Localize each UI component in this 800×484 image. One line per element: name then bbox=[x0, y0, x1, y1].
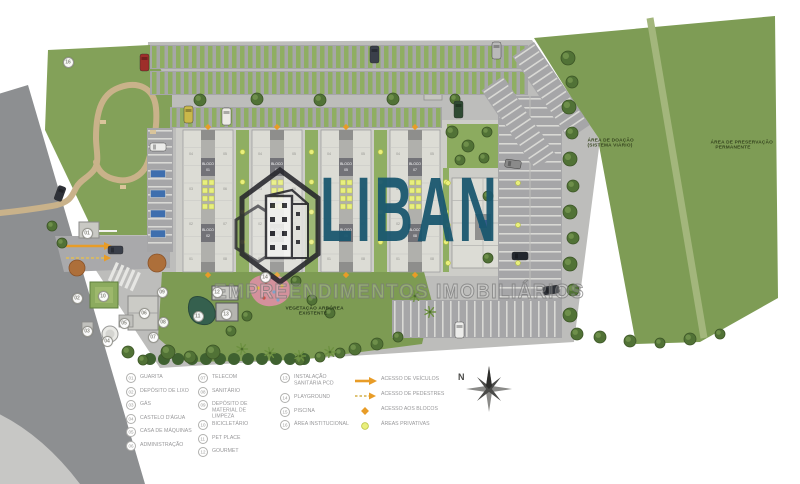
unit-label: 04 bbox=[258, 152, 262, 156]
car-icon bbox=[222, 108, 231, 125]
private-area-lamp-dot bbox=[240, 150, 245, 155]
legend-item-number: 09 bbox=[201, 403, 206, 408]
area-label-preservacao: ÁREA DE PRESERVAÇÃO PERMANENTE bbox=[688, 140, 778, 151]
map-marker-01: 01 bbox=[82, 228, 93, 239]
private-area-lamp-dot bbox=[446, 261, 451, 266]
parking-band bbox=[392, 300, 562, 338]
car-icon bbox=[370, 46, 379, 63]
legend-access-label: ACESSO DE PEDESTRES bbox=[381, 391, 454, 397]
bloco-label-band bbox=[201, 158, 215, 176]
tree-highlight bbox=[139, 356, 144, 361]
lightwell bbox=[209, 204, 214, 209]
map-marker-09: 09 bbox=[157, 287, 168, 298]
bloco-label: 01 bbox=[206, 168, 210, 172]
track-rest-spot bbox=[100, 120, 106, 124]
legend-access-label: ÁREAS PRIVATIVAS bbox=[381, 421, 454, 427]
lightwell bbox=[203, 204, 208, 209]
legend-item-label: TELECOM bbox=[212, 374, 268, 380]
map-marker-number: 02 bbox=[74, 295, 80, 301]
legend-item-number: 10 bbox=[201, 423, 206, 428]
legend-item-number-circle: 09 bbox=[198, 400, 208, 410]
tree-highlight bbox=[163, 347, 169, 353]
legend-item-05: 05CASA DE MÁQUINAS bbox=[126, 427, 198, 441]
tree-highlight bbox=[569, 234, 574, 239]
tree-highlight bbox=[565, 207, 571, 213]
map-marker-number: 16 bbox=[65, 59, 71, 65]
bloco-label-band bbox=[201, 224, 215, 242]
legend: 01GUARITA02DEPÓSITO DE LIXO03GÁS04CASTEL… bbox=[126, 373, 596, 478]
legend-item-06: 06ADMINISTRAÇÃO bbox=[126, 441, 198, 455]
tree-highlight bbox=[716, 330, 721, 335]
legend-item-label: GOURMET bbox=[212, 448, 268, 454]
legend-item-number-circle: 15 bbox=[280, 407, 290, 417]
map-marker-08: 08 bbox=[158, 317, 169, 328]
tree-highlight bbox=[336, 349, 341, 354]
map-marker-number: 10 bbox=[100, 293, 106, 299]
tree-highlight bbox=[564, 102, 570, 108]
private-area-lamp-dot bbox=[309, 150, 314, 155]
unit-label: 05 bbox=[223, 152, 227, 156]
legend-item-number-circle: 06 bbox=[126, 441, 136, 451]
legend-item-number-circle: 11 bbox=[198, 434, 208, 444]
bloco-label: BLOCO bbox=[271, 162, 283, 166]
legend-item-number-circle: 08 bbox=[198, 387, 208, 397]
legend-item-label: CASA DE MÁQUINAS bbox=[140, 428, 196, 434]
map-marker-number: 06 bbox=[141, 310, 147, 316]
unit-label: 05 bbox=[361, 152, 365, 156]
legend-access-arrow-solid: ACESSO DE VEÍCULOS bbox=[354, 374, 464, 389]
private-area-lamp-dot bbox=[378, 150, 383, 155]
map-marker-number: 12 bbox=[214, 289, 220, 295]
map-marker-11: 11 bbox=[193, 311, 204, 322]
map-marker-number: 09 bbox=[159, 289, 165, 295]
residential-block: BLOCO01BLOCO020403020105060708 bbox=[183, 124, 233, 278]
tree-highlight bbox=[451, 95, 456, 100]
legend-item-label: PLAYGROUND bbox=[294, 394, 350, 400]
tree-highlight bbox=[565, 154, 571, 160]
legend-item-number: 15 bbox=[283, 409, 288, 414]
unit-label: 08 bbox=[223, 257, 227, 261]
car-icon bbox=[150, 143, 166, 151]
legend-item-number-circle: 10 bbox=[198, 420, 208, 430]
circle-icon bbox=[354, 421, 378, 431]
legend-item-number-circle: 13 bbox=[280, 373, 290, 383]
map-marker-number: 01 bbox=[84, 230, 90, 236]
site-plan-canvas: BLOCO01BLOCO020403020105060708BLOCO03BLO… bbox=[0, 0, 800, 484]
tree-highlight bbox=[389, 95, 394, 100]
car-icon bbox=[512, 252, 528, 260]
tree-highlight bbox=[48, 222, 53, 227]
legend-item-label: DEPÓSITO DE MATERIAL DE LIMPEZA bbox=[212, 401, 268, 420]
legend-access-diamond: ACESSO AOS BLOCOS bbox=[354, 404, 464, 419]
map-marker-12: 12 bbox=[212, 287, 223, 298]
bloco-label: 02 bbox=[206, 234, 210, 238]
tree-highlight bbox=[686, 335, 691, 340]
lightwell bbox=[209, 188, 214, 193]
legend-item-04: 04CASTELO D'ÁGUA bbox=[126, 414, 198, 428]
tree-highlight bbox=[58, 239, 63, 244]
tree-highlight bbox=[351, 345, 356, 350]
compass: N bbox=[450, 364, 512, 422]
legend-item-number: 02 bbox=[129, 389, 134, 394]
legend-item-number-circle: 01 bbox=[126, 373, 136, 383]
legend-item-label: CASTELO D'ÁGUA bbox=[140, 415, 196, 421]
private-area-lamp-dot bbox=[516, 181, 521, 186]
tree-highlight bbox=[568, 129, 573, 134]
map-marker-03: 03 bbox=[82, 326, 93, 337]
arrow-solid-icon bbox=[354, 376, 378, 386]
legend-item-number: 03 bbox=[129, 403, 134, 408]
unit-label: 01 bbox=[189, 257, 193, 261]
map-marker-16: 16 bbox=[63, 57, 74, 68]
accessible-parking-stall bbox=[151, 230, 166, 238]
accessible-parking-stall bbox=[151, 190, 166, 198]
legend-item-number-circle: 14 bbox=[280, 393, 290, 403]
map-marker-14: 14 bbox=[260, 272, 271, 283]
area-label-doacao: ÁREA DE DOAÇÃO (SISTEMA VIÁRIO) bbox=[565, 138, 655, 149]
tree-highlight bbox=[208, 347, 214, 353]
legend-item-08: 08SANITÁRIO bbox=[198, 387, 270, 401]
legend-item-07: 07TELECOM bbox=[198, 373, 270, 387]
legend-access-circle: ÁREAS PRIVATIVAS bbox=[354, 419, 464, 434]
legend-item-10: 10BICICLETÁRIO bbox=[198, 420, 270, 434]
private-area-lamp-dot bbox=[516, 261, 521, 266]
map-marker-13: 13 bbox=[221, 309, 232, 320]
tree-highlight bbox=[464, 142, 469, 147]
bloco-label: BLOCO bbox=[202, 228, 214, 232]
unit-label: 03 bbox=[189, 187, 193, 191]
legend-item-number-circle: 12 bbox=[198, 447, 208, 457]
parking-band bbox=[150, 71, 528, 95]
tree-highlight bbox=[448, 128, 453, 133]
private-area-lamp-dot bbox=[516, 223, 521, 228]
legend-access-label: ACESSO DE VEÍCULOS bbox=[381, 376, 454, 382]
tree-highlight bbox=[196, 96, 201, 101]
lightwell bbox=[203, 180, 208, 185]
unit-label: 06 bbox=[223, 187, 227, 191]
legend-item-number-circle: 16 bbox=[280, 420, 290, 430]
bloco-label: BLOCO bbox=[202, 162, 214, 166]
legend-access-label: ACESSO AOS BLOCOS bbox=[381, 406, 454, 412]
legend-item-number: 04 bbox=[129, 416, 134, 421]
map-marker-number: 14 bbox=[262, 274, 268, 280]
legend-item-01: 01GUARITA bbox=[126, 373, 198, 387]
legend-item-label: GÁS bbox=[140, 401, 196, 407]
tree-highlight bbox=[186, 353, 191, 358]
car-icon bbox=[108, 246, 123, 254]
compass-n-label: N bbox=[458, 372, 465, 382]
tree-highlight bbox=[596, 333, 601, 338]
map-marker-number: 11 bbox=[195, 313, 200, 319]
map-marker-number: 03 bbox=[84, 328, 90, 334]
legend-item-14: 14PLAYGROUND bbox=[280, 393, 352, 407]
car-icon bbox=[184, 106, 193, 123]
area-label-vegetacao: VEGETAÇÃO ARBÓREA EXISTENTE bbox=[258, 306, 368, 317]
area-label-doacao-line2: (SISTEMA VIÁRIO) bbox=[588, 143, 633, 148]
unit-label: 05 bbox=[292, 152, 296, 156]
map-marker-10: 10 bbox=[98, 291, 109, 302]
map-marker-05: 05 bbox=[119, 318, 130, 329]
tree-highlight bbox=[565, 310, 571, 316]
liban-logo-icon bbox=[240, 168, 320, 284]
legend-item-11: 11PET PLACE bbox=[198, 434, 270, 448]
legend-item-number: 14 bbox=[283, 396, 288, 401]
legend-item-16: 16ÁREA INSTITUCIONAL bbox=[280, 420, 352, 440]
car-icon bbox=[140, 54, 149, 71]
legend-item-label: PISCINA bbox=[294, 408, 350, 414]
legend-item-number: 06 bbox=[129, 443, 134, 448]
map-marker-07: 07 bbox=[148, 332, 159, 343]
legend-item-number-circle: 07 bbox=[198, 373, 208, 383]
hedge bbox=[228, 353, 240, 365]
map-marker-number: 05 bbox=[121, 320, 127, 326]
map-marker-number: 08 bbox=[160, 319, 166, 325]
tree-highlight bbox=[563, 53, 569, 59]
hedge bbox=[284, 353, 296, 365]
car-icon bbox=[454, 101, 463, 118]
legend-item-number: 08 bbox=[201, 389, 206, 394]
legend-item-12: 12GOURMET bbox=[198, 447, 270, 461]
accessible-parking-stall bbox=[151, 210, 166, 218]
legend-item-02: 02DEPÓSITO DE LIXO bbox=[126, 387, 198, 401]
legend-item-13: 13INSTALAÇÃO SANITÁRIA PCD bbox=[280, 373, 352, 393]
parking-band bbox=[170, 107, 442, 128]
tree-highlight bbox=[626, 337, 631, 342]
legend-item-label: SANITÁRIO bbox=[212, 388, 268, 394]
legend-item-number: 16 bbox=[283, 423, 288, 428]
legend-item-number-circle: 03 bbox=[126, 400, 136, 410]
unit-label: 04 bbox=[327, 152, 331, 156]
legend-access-arrow-dashed: ACESSO DE PEDESTRES bbox=[354, 389, 464, 404]
legend-item-03: 03GÁS bbox=[126, 400, 198, 414]
tree-highlight bbox=[253, 95, 258, 100]
legend-item-number: 11 bbox=[201, 436, 206, 441]
map-marker-number: 04 bbox=[104, 338, 110, 344]
tree-highlight bbox=[373, 340, 378, 345]
hedge bbox=[242, 353, 254, 365]
watermark-brand: LIBAN bbox=[320, 164, 500, 256]
accessible-parking-stall bbox=[151, 170, 166, 178]
legend-item-label: GUARITA bbox=[140, 374, 196, 380]
tree-highlight bbox=[568, 78, 573, 83]
area-label-preservacao-line2: PERMANENTE bbox=[711, 145, 756, 150]
legend-item-label: DEPÓSITO DE LIXO bbox=[140, 388, 196, 394]
map-marker-06: 06 bbox=[139, 308, 150, 319]
legend-column-2: 07TELECOM08SANITÁRIO09DEPÓSITO DE MATERI… bbox=[198, 373, 270, 461]
watermark-subtitle: EMPREENDIMENTOS IMOBILIÁRIOS bbox=[214, 281, 585, 304]
compass-rose-icon bbox=[466, 366, 512, 412]
tree-highlight bbox=[573, 330, 578, 335]
track-rest-spot bbox=[150, 130, 156, 134]
arrow-dashed-icon bbox=[354, 391, 378, 401]
tree-highlight bbox=[569, 182, 574, 187]
legend-item-label: ÁREA INSTITUCIONAL bbox=[294, 421, 350, 427]
map-marker-02: 02 bbox=[72, 293, 83, 304]
orange-tree-icon bbox=[69, 260, 85, 276]
car-icon bbox=[492, 42, 501, 59]
legend-item-label: BICICLETÁRIO bbox=[212, 421, 268, 427]
legend-item-15: 15PISCINA bbox=[280, 407, 352, 421]
legend-column-1: 01GUARITA02DEPÓSITO DE LIXO03GÁS04CASTEL… bbox=[126, 373, 198, 454]
unit-label: 04 bbox=[396, 152, 400, 156]
tree-highlight bbox=[565, 259, 571, 265]
legend-item-label: INSTALAÇÃO SANITÁRIA PCD bbox=[294, 374, 350, 386]
legend-item-number: 07 bbox=[201, 376, 206, 381]
map-marker-number: 07 bbox=[150, 334, 156, 340]
unit-label: 07 bbox=[223, 222, 227, 226]
tree-highlight bbox=[227, 327, 232, 332]
legend-item-number-circle: 04 bbox=[126, 414, 136, 424]
legend-item-number: 13 bbox=[283, 376, 288, 381]
map-marker-number: 13 bbox=[223, 311, 229, 317]
legend-item-number: 12 bbox=[201, 450, 206, 455]
unit-label: 05 bbox=[430, 152, 434, 156]
tree-highlight bbox=[124, 348, 129, 353]
lightwell bbox=[203, 188, 208, 193]
track-rest-spot bbox=[120, 185, 126, 189]
diamond-icon bbox=[354, 406, 378, 416]
tree-highlight bbox=[243, 312, 248, 317]
legend-item-number-circle: 05 bbox=[126, 427, 136, 437]
area-label-vegetacao-line2: EXISTENTE bbox=[286, 311, 341, 316]
tree-highlight bbox=[316, 96, 321, 101]
legend-item-label: ADMINISTRAÇÃO bbox=[140, 442, 196, 448]
legend-item-09: 09DEPÓSITO DE MATERIAL DE LIMPEZA bbox=[198, 400, 270, 420]
map-marker-04: 04 bbox=[102, 336, 113, 347]
parking-band bbox=[150, 45, 528, 69]
orange-tree-icon bbox=[148, 254, 166, 272]
lightwell bbox=[209, 196, 214, 201]
lightwell bbox=[203, 196, 208, 201]
tree-highlight bbox=[483, 128, 488, 133]
tree-highlight bbox=[656, 339, 661, 344]
tree-highlight bbox=[394, 333, 399, 338]
tree-highlight bbox=[316, 353, 321, 358]
legend-column-3: 13INSTALAÇÃO SANITÁRIA PCD14PLAYGROUND15… bbox=[280, 373, 352, 440]
lightwell bbox=[209, 180, 214, 185]
legend-item-label: PET PLACE bbox=[212, 435, 268, 441]
legend-access-column: ACESSO DE VEÍCULOSACESSO DE PEDESTRESACE… bbox=[354, 374, 464, 434]
car-icon bbox=[455, 322, 464, 338]
unit-label: 02 bbox=[189, 222, 193, 226]
unit-label: 04 bbox=[189, 152, 193, 156]
legend-item-number-circle: 02 bbox=[126, 387, 136, 397]
legend-item-number: 05 bbox=[129, 430, 134, 435]
legend-item-number: 01 bbox=[129, 376, 134, 381]
